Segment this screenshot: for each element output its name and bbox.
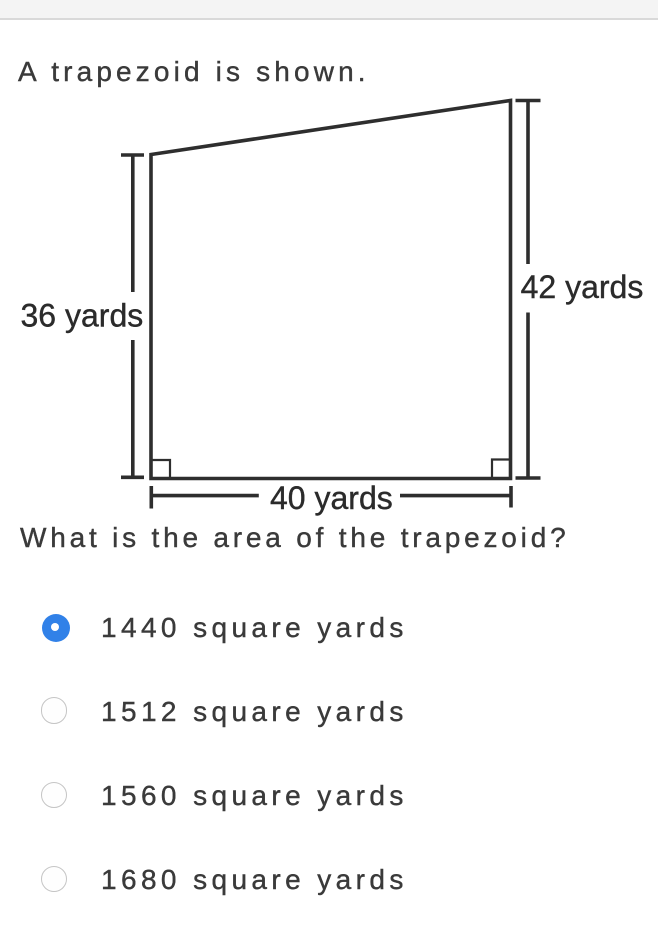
svg-text:36 yards: 36 yards bbox=[21, 297, 144, 333]
svg-text:42 yards: 42 yards bbox=[521, 269, 644, 305]
svg-text:40 yards: 40 yards bbox=[270, 480, 393, 516]
